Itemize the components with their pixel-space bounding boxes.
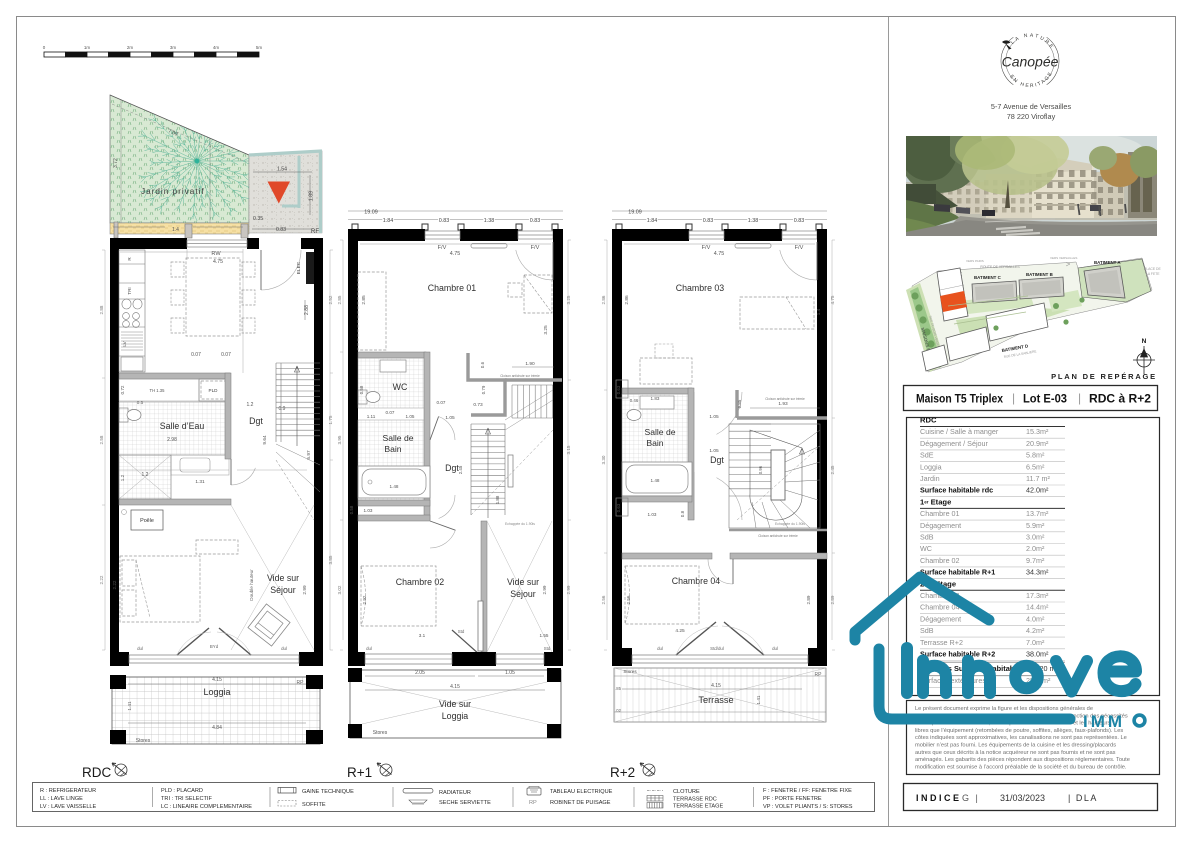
svg-text:Terrasse: Terrasse (698, 695, 733, 705)
svg-text:CLOTURE: CLOTURE (673, 789, 700, 795)
svg-text:1.84: 1.84 (383, 218, 394, 224)
svg-text:R+1: R+1 (347, 765, 372, 780)
svg-text:2m: 2m (127, 45, 134, 50)
svg-text:dul: dul (281, 646, 287, 651)
svg-text:Std: Std (458, 629, 465, 634)
svg-text:WC: WC (393, 382, 408, 392)
svg-text:4.0m²: 4.0m² (1026, 614, 1045, 623)
svg-text:2.22: 2.22 (112, 580, 117, 589)
svg-text:0.63: 0.63 (616, 503, 621, 512)
svg-text:2.52: 2.52 (328, 295, 333, 304)
svg-text:LC : LINEAIRE COMPLEMENTAIRE: LC : LINEAIRE COMPLEMENTAIRE (161, 804, 252, 810)
svg-text:1.93: 1.93 (778, 401, 788, 407)
svg-text:2.86: 2.86 (601, 295, 606, 304)
svg-text:3.72: 3.72 (113, 158, 119, 168)
svg-text:Canopée: Canopée (1002, 54, 1059, 70)
svg-text:TABLEAU ELECTRIQUE: TABLEAU ELECTRIQUE (550, 789, 613, 795)
svg-text:1.2: 1.2 (120, 474, 125, 481)
svg-text:.85: .85 (615, 686, 621, 691)
svg-text:dul: dul (137, 646, 143, 651)
svg-text:2.85: 2.85 (361, 295, 367, 305)
svg-text:0.63: 0.63 (616, 385, 621, 394)
svg-text:Cloison antichute sur trémie: Cloison antichute sur trémie (758, 534, 798, 538)
svg-text:0.83: 0.83 (794, 218, 805, 224)
svg-text:2.05: 2.05 (415, 670, 425, 676)
svg-text:ELEC: ELEC (296, 261, 302, 274)
svg-text:31/03/2023: 31/03/2023 (1000, 793, 1045, 803)
svg-text:2.89: 2.89 (830, 595, 835, 604)
svg-text:2.88: 2.88 (304, 305, 310, 315)
svg-text:19.09: 19.09 (364, 210, 378, 216)
svg-text:VERS VERSAILLES: VERS VERSAILLES (1050, 256, 1077, 260)
svg-text:1.55: 1.55 (540, 633, 549, 638)
svg-text:78 220 Viroflay: 78 220 Viroflay (1007, 112, 1056, 121)
svg-text:2.58: 2.58 (99, 435, 104, 444)
svg-text:Std: Std (544, 646, 551, 651)
svg-text:F/V: F/V (795, 245, 804, 251)
svg-text:Maison T5 Triplex: Maison T5 Triplex (916, 392, 1003, 406)
svg-text:Salle de: Salle de (382, 433, 413, 443)
svg-text:1.89: 1.89 (309, 191, 315, 201)
svg-text:3.0m²: 3.0m² (1026, 533, 1045, 542)
svg-text:34.3m²: 34.3m² (1026, 568, 1049, 577)
svg-text:LL : LAVE LINGE: LL : LAVE LINGE (40, 796, 83, 802)
svg-text:WC: WC (920, 544, 932, 553)
svg-text:3.15: 3.15 (566, 445, 571, 454)
svg-text:Bain: Bain (646, 438, 663, 448)
svg-text:TRI : TRI SELECTIF: TRI : TRI SELECTIF (161, 796, 212, 802)
svg-text:1.11: 1.11 (367, 414, 376, 419)
svg-text:2.22: 2.22 (99, 575, 104, 584)
svg-text:dul: dul (366, 646, 372, 651)
svg-text:LV : LAVE VAISSELLE: LV : LAVE VAISSELLE (40, 804, 97, 810)
svg-text:mobilier n’est pas fourni. Les: mobilier n’est pas fourni. Les équipemen… (915, 743, 1116, 749)
svg-text:| DLA: | DLA (1068, 793, 1098, 803)
svg-text:2.89: 2.89 (806, 595, 811, 604)
svg-text:20.9m²: 20.9m² (1026, 439, 1049, 448)
svg-text:1.48: 1.48 (390, 484, 399, 489)
svg-text:4.75: 4.75 (714, 251, 725, 257)
svg-text:Surfaces extérieures: Surfaces extérieures (920, 676, 986, 685)
svg-text:5.9m²: 5.9m² (1026, 521, 1045, 530)
svg-text:côtes indiquées sont approxima: côtes indiquées sont approximatives, les… (915, 735, 1127, 741)
svg-text:Stores: Stores (136, 738, 151, 744)
svg-text:PF : PORTE FENETRE: PF : PORTE FENETRE (763, 796, 822, 802)
svg-text:5.8m²: 5.8m² (1026, 451, 1045, 460)
svg-text:1.48: 1.48 (651, 478, 660, 483)
svg-text:1.84: 1.84 (647, 218, 658, 224)
svg-text:1.03: 1.03 (364, 508, 373, 513)
svg-text:Vide sur: Vide sur (439, 699, 471, 709)
svg-text:|: | (1078, 391, 1081, 405)
svg-text:2.85: 2.85 (337, 295, 342, 304)
svg-text:RDC à R+2: RDC à R+2 (1089, 392, 1151, 406)
svg-text:TERRASSE RDC: TERRASSE RDC (673, 797, 717, 803)
svg-text:Vide sur: Vide sur (267, 573, 299, 583)
svg-text:0.72: 0.72 (120, 385, 125, 394)
svg-text:2.45: 2.45 (830, 465, 835, 474)
svg-text:Cloison antichute sur trémie: Cloison antichute sur trémie (765, 397, 805, 401)
svg-text:Double hauteur: Double hauteur (249, 569, 254, 601)
svg-text:3.30: 3.30 (601, 455, 606, 464)
svg-text:0.73: 0.73 (473, 402, 483, 408)
svg-text:Vide sur: Vide sur (507, 577, 539, 587)
svg-text:BATIMENT C: BATIMENT C (974, 275, 1002, 280)
svg-text:3.85: 3.85 (328, 555, 333, 564)
svg-text:LA FETE: LA FETE (1146, 272, 1160, 276)
svg-text:0.9: 0.9 (279, 406, 286, 412)
svg-text:TH 1.35: TH 1.35 (150, 388, 166, 393)
svg-text:2.56: 2.56 (626, 595, 631, 604)
svg-text:R : REFRIGERATEUR: R : REFRIGERATEUR (40, 788, 96, 794)
svg-text:1.31: 1.31 (195, 479, 205, 485)
svg-text:4.75: 4.75 (213, 259, 223, 265)
svg-text:PLACE DE: PLACE DE (1144, 267, 1162, 271)
svg-text:Surface habitable rdc: Surface habitable rdc (920, 486, 993, 495)
svg-text:2.88: 2.88 (99, 305, 104, 314)
svg-text:0.07: 0.07 (386, 410, 395, 415)
svg-text:1.90: 1.90 (525, 361, 535, 367)
svg-text:Dégagement: Dégagement (920, 521, 961, 530)
svg-text:0.83: 0.83 (530, 218, 541, 224)
svg-text:2.86: 2.86 (624, 295, 630, 305)
svg-text:Séjour: Séjour (270, 585, 295, 595)
svg-text:1.88: 1.88 (495, 495, 500, 504)
svg-text:2.99: 2.99 (566, 585, 571, 594)
svg-text:Surface habitable R+1: Surface habitable R+1 (920, 568, 995, 577)
svg-text:Cuisine / Salle à manger: Cuisine / Salle à manger (920, 427, 999, 436)
svg-text:0.83: 0.83 (439, 218, 450, 224)
svg-text:0.07: 0.07 (437, 400, 446, 405)
svg-text:2.0m²: 2.0m² (1026, 544, 1045, 553)
svg-text:Lot E-03: Lot E-03 (1023, 392, 1067, 406)
svg-text:5.97: 5.97 (306, 450, 312, 460)
svg-text:Echappée du 1.90is: Echappée du 1.90is (505, 522, 535, 526)
svg-text:3.95: 3.95 (337, 435, 342, 444)
svg-text:0.35: 0.35 (253, 216, 263, 222)
svg-text:9.7m²: 9.7m² (1026, 556, 1045, 565)
svg-text:INDICE: INDICE (916, 793, 962, 803)
svg-text:0.07: 0.07 (221, 352, 231, 358)
svg-text:1.4: 1.4 (172, 227, 179, 233)
svg-text:BATIMENT B: BATIMENT B (1026, 272, 1053, 277)
svg-text:38.0m²: 38.0m² (1026, 650, 1049, 659)
svg-text:Cloison antichute sur trémie: Cloison antichute sur trémie (500, 374, 540, 378)
svg-text:RADIATEUR: RADIATEUR (439, 790, 471, 796)
svg-text:modification est soumise à l’a: modification est soumise à l’accord préa… (915, 764, 1127, 770)
svg-text:RP: RP (529, 800, 537, 806)
svg-text:F : FENETRE / FF: FENETRE FIXE: F : FENETRE / FF: FENETRE FIXE (763, 788, 852, 794)
svg-text:Stores: Stores (623, 669, 637, 674)
svg-text:Loggia: Loggia (442, 711, 469, 721)
svg-text:F/V: F/V (438, 245, 447, 251)
svg-text:0.07: 0.07 (191, 352, 201, 358)
svg-text:Stores: Stores (373, 730, 388, 736)
svg-text:17.3m²: 17.3m² (1026, 591, 1049, 600)
svg-text:0.83: 0.83 (703, 218, 714, 224)
svg-text:13.7m²: 13.7m² (1026, 509, 1049, 518)
svg-text:VERS PARIS: VERS PARIS (966, 259, 984, 263)
svg-text:ROBINET DE PUISAGE: ROBINET DE PUISAGE (550, 800, 611, 806)
svg-text:|: | (1012, 391, 1015, 405)
svg-text:0.96: 0.96 (758, 465, 763, 474)
svg-text:Dégagement / Séjour: Dégagement / Séjour (920, 439, 989, 448)
svg-text:RP: RP (815, 672, 823, 678)
svg-text:Salle d’Eau: Salle d’Eau (160, 421, 205, 431)
svg-text:BATIMENT A: BATIMENT A (1094, 260, 1121, 265)
svg-text:2.99: 2.99 (542, 585, 547, 594)
svg-text:autres que ceux décrits à la n: autres que ceux décrits à la notice acqu… (915, 750, 1116, 756)
svg-text:Chambre 01: Chambre 01 (920, 509, 960, 518)
svg-text:0.58: 0.58 (359, 385, 364, 394)
svg-text:0.85: 0.85 (737, 399, 742, 408)
svg-text:VP : VOLET PLIANTS / S: STORES: VP : VOLET PLIANTS / S: STORES (763, 804, 853, 810)
svg-text:F/V: F/V (531, 245, 540, 251)
svg-text:Dégagement: Dégagement (920, 614, 961, 623)
svg-text:RF: RF (311, 229, 319, 235)
svg-text:4.75: 4.75 (830, 295, 835, 304)
svg-text:1.03: 1.03 (648, 512, 657, 517)
svg-text:11.7 m²: 11.7 m² (1026, 474, 1050, 483)
svg-text:SdB: SdB (920, 533, 934, 542)
svg-text:BYd: BYd (210, 644, 219, 649)
svg-text:G |: G | (962, 793, 980, 803)
svg-text:RDC: RDC (920, 416, 937, 425)
svg-text:dul: dul (772, 646, 778, 651)
svg-text:0.79: 0.79 (481, 385, 486, 394)
svg-text:2.99: 2.99 (302, 585, 308, 595)
svg-text:SOFFITE: SOFFITE (302, 802, 326, 808)
svg-text:1.54: 1.54 (277, 167, 287, 173)
svg-text:1.38: 1.38 (484, 218, 495, 224)
svg-text:1.75: 1.75 (328, 415, 333, 424)
svg-text:Dgt: Dgt (710, 455, 724, 465)
svg-text:1.4: 1.4 (816, 308, 821, 315)
svg-text:6.5m²: 6.5m² (1026, 462, 1045, 471)
svg-text:1.2: 1.2 (142, 472, 149, 478)
svg-text:GAINE TECHNIQUE: GAINE TECHNIQUE (302, 789, 354, 795)
svg-text:TERRASSE ETAGE: TERRASSE ETAGE (673, 804, 724, 810)
svg-text:42.0m²: 42.0m² (1026, 486, 1049, 495)
svg-text:1.41: 1.41 (756, 695, 761, 704)
svg-text:14.4m²: 14.4m² (1026, 603, 1049, 612)
svg-text:15.3m²: 15.3m² (1026, 427, 1049, 436)
svg-text:4.84: 4.84 (212, 725, 222, 731)
svg-text:PLD : PLACARD: PLD : PLACARD (161, 788, 203, 794)
svg-text:PLD: PLD (209, 388, 219, 393)
svg-text:4.15: 4.15 (711, 683, 721, 689)
svg-text:Jardin privatif: Jardin privatif (141, 187, 205, 196)
svg-text:1.2: 1.2 (247, 402, 254, 408)
svg-text:.02: .02 (615, 708, 621, 713)
svg-text:SECHE SERVIETTE: SECHE SERVIETTE (439, 800, 491, 806)
svg-text:7.0m²: 7.0m² (1026, 638, 1045, 647)
svg-text:4.2m²: 4.2m² (1026, 626, 1045, 635)
svg-text:aménagés. Les gabarits des piè: aménagés. Les gabarits des pièces répond… (915, 757, 1130, 763)
svg-text:1.05: 1.05 (505, 670, 515, 676)
svg-text:Std/dul: Std/dul (710, 646, 724, 651)
svg-text:1.41: 1.41 (127, 701, 133, 711)
svg-text:0.58: 0.58 (349, 505, 354, 514)
svg-text:Bain: Bain (384, 444, 401, 454)
svg-text:1.83: 1.83 (651, 396, 660, 401)
svg-text:F/V: F/V (702, 245, 711, 251)
svg-text:R+2: R+2 (610, 765, 635, 780)
svg-text:5-7 Avenue de Versailles: 5-7 Avenue de Versailles (991, 102, 1072, 111)
svg-text:Salle de: Salle de (644, 427, 675, 437)
svg-text:RDC: RDC (82, 765, 111, 780)
svg-text:RP: RP (297, 680, 305, 686)
svg-text:19.09: 19.09 (628, 210, 642, 216)
svg-text:3.1: 3.1 (419, 633, 426, 638)
svg-text:ROUTE DE VERSAILLES: ROUTE DE VERSAILLES (980, 265, 1020, 269)
svg-text:IMM: IMM (1083, 712, 1125, 731)
svg-text:Chambre 03: Chambre 03 (676, 283, 725, 293)
svg-text:Le présent document exprime la: Le présent document exprime la figure et… (915, 706, 1093, 712)
svg-text:4.25: 4.25 (675, 628, 685, 634)
svg-text:Séjour: Séjour (510, 589, 535, 599)
svg-text:Echappée du 1.90is: Echappée du 1.90is (775, 522, 805, 526)
svg-text:4.15: 4.15 (212, 677, 222, 683)
svg-text:Dgt: Dgt (249, 416, 263, 426)
svg-text:TRI: TRI (127, 287, 132, 294)
svg-text:Loggia: Loggia (203, 687, 230, 697)
svg-text:3m: 3m (170, 45, 177, 50)
svg-text:1.05: 1.05 (709, 448, 719, 454)
svg-text:5m: 5m (256, 45, 263, 50)
svg-text:3.02: 3.02 (337, 585, 342, 594)
svg-text:2.98: 2.98 (167, 437, 177, 443)
svg-text:PLAN DE REPÉRAGE: PLAN DE REPÉRAGE (1051, 372, 1157, 381)
svg-text:2.56: 2.56 (601, 595, 606, 604)
svg-text:1m: 1m (84, 45, 91, 50)
svg-text:Surface habitable R+2: Surface habitable R+2 (920, 650, 995, 659)
svg-text:0.83: 0.83 (276, 227, 286, 233)
svg-text:1.05: 1.05 (445, 415, 455, 421)
svg-text:2.92: 2.92 (362, 595, 367, 604)
svg-text:Chambre 01: Chambre 01 (428, 283, 477, 293)
svg-text:SdE: SdE (920, 451, 934, 460)
svg-text:1.38: 1.38 (748, 218, 759, 224)
svg-text:3.25: 3.25 (566, 295, 571, 304)
svg-text:0.8: 0.8 (680, 510, 685, 517)
svg-text:Terrasse R+2: Terrasse R+2 (920, 638, 963, 647)
svg-text:Chambre 04: Chambre 04 (672, 576, 721, 586)
svg-text:Loggia: Loggia (920, 462, 942, 471)
svg-text:0.6: 0.6 (480, 361, 485, 368)
svg-text:1.05: 1.05 (406, 414, 415, 419)
svg-text:SdB: SdB (920, 626, 934, 635)
svg-text:3.25: 3.25 (543, 325, 549, 335)
svg-text:Jardin: Jardin (920, 474, 940, 483)
svg-text:4.15: 4.15 (450, 684, 460, 690)
svg-text:N: N (1142, 338, 1147, 345)
svg-text:9.64: 9.64 (262, 435, 268, 445)
svg-text:1.05: 1.05 (709, 414, 719, 420)
svg-text:4.75: 4.75 (450, 251, 461, 257)
svg-text:Chambre 02: Chambre 02 (920, 556, 960, 565)
svg-text:Chambre 02: Chambre 02 (396, 577, 445, 587)
svg-text:4m: 4m (213, 45, 220, 50)
svg-text:dul: dul (657, 646, 663, 651)
svg-text:Poêle: Poêle (140, 518, 154, 524)
svg-text:2.45: 2.45 (458, 465, 463, 474)
